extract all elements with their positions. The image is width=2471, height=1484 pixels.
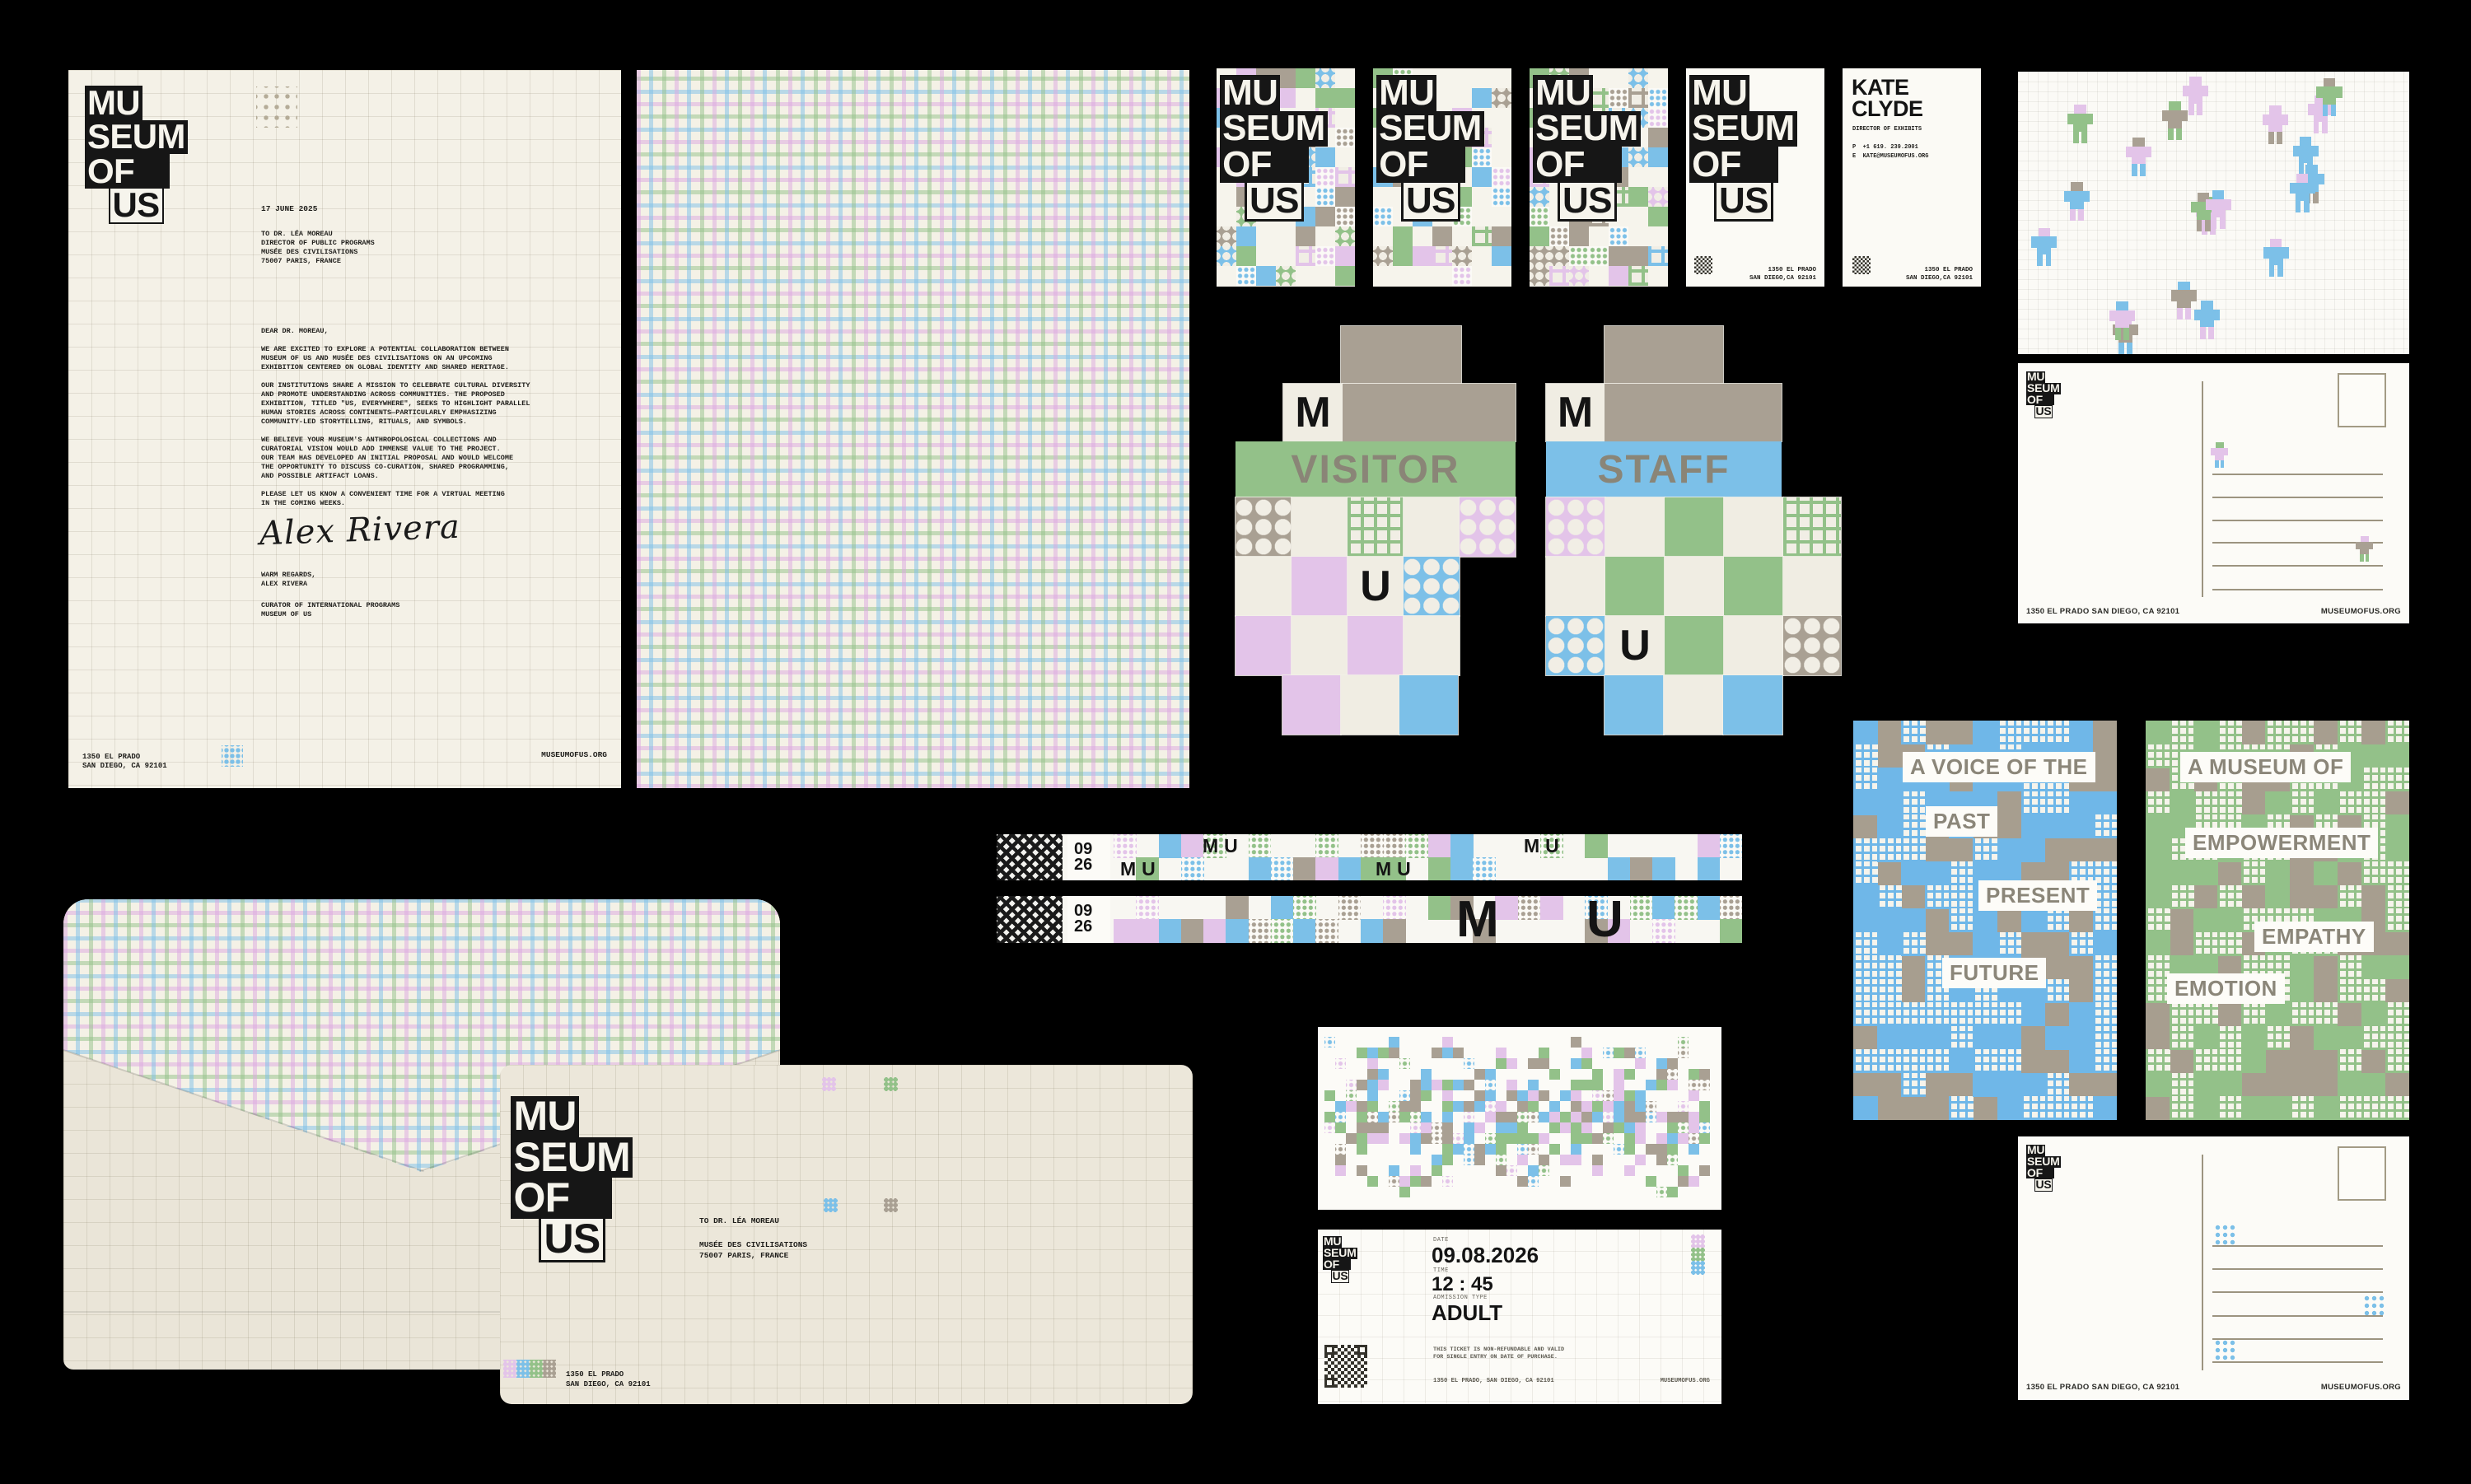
mosaic-cell [1474, 1144, 1485, 1155]
mosaic-cell [1357, 1101, 1367, 1112]
pixel-block [2269, 259, 2283, 265]
poster-cell [1949, 1002, 1974, 1026]
mosaic-cell [1614, 1101, 1624, 1112]
mosaic-cell [1581, 1058, 1592, 1069]
poster-cell [1877, 1002, 1902, 1026]
mosaic-cell [1464, 1058, 1474, 1069]
poster-cell [1853, 1049, 1878, 1073]
pixel-block [2126, 147, 2151, 157]
mosaic-cell [1689, 1144, 1699, 1155]
card-pattern-cell [1549, 246, 1569, 266]
museum-of-us-logo: MUSEUMOFUS [1533, 75, 1641, 222]
card-pattern-cell [1452, 246, 1472, 266]
poster-cell [1925, 1026, 1950, 1050]
mosaic-cell [1517, 1133, 1528, 1144]
mosaic-cell [1432, 1133, 1442, 1144]
dot-motif-icon [884, 1198, 898, 1212]
pixel-block [2322, 122, 2328, 133]
dot-motif-icon [824, 1198, 838, 1212]
logo-spacer-block [1587, 147, 1622, 183]
wristband-cell [1652, 896, 1675, 920]
mosaic-cell [1678, 1122, 1689, 1133]
pixel-block [2270, 239, 2282, 248]
poster-cell [2069, 1002, 2094, 1026]
poster-cell [2265, 885, 2290, 909]
poster-cell [1925, 1049, 1950, 1073]
pixel-block [2296, 174, 2308, 183]
poster-cell [1973, 908, 1997, 932]
mosaic-cell [1699, 1122, 1710, 1133]
mosaic-cell [1496, 1122, 1506, 1133]
poster-cell [1901, 1073, 1926, 1097]
poster-cell [2217, 1073, 2242, 1097]
poster-cell [2361, 1073, 2386, 1097]
poster-cell [2093, 932, 2117, 956]
pattern-sheet [637, 70, 1189, 788]
pixel-block [2171, 290, 2197, 301]
logo-box: MU [1689, 75, 1749, 111]
wristband-cell [1698, 834, 1721, 858]
mosaic-cell [1410, 1133, 1421, 1144]
dot-motif-icon [2363, 1295, 2385, 1317]
mosaic-cell [1335, 1155, 1346, 1165]
mosaic-cell [1442, 1155, 1453, 1165]
poster-cell [2290, 1096, 2315, 1120]
mosaic-cell [1485, 1144, 1496, 1155]
mosaic-cell [1689, 1080, 1699, 1090]
mosaic-cell [1635, 1101, 1646, 1112]
poster-cell [2146, 744, 2170, 768]
staff-badge: MSTAFFU [1546, 326, 1843, 738]
card-pattern-cell [1609, 266, 1628, 286]
poster-line: A VOICE OF THE [1903, 752, 2095, 782]
mosaic-cell [1485, 1112, 1496, 1122]
poster-cell [2385, 861, 2409, 885]
wristband-cell [1293, 919, 1316, 943]
pixel-block [2070, 209, 2076, 221]
museum-of-us-logo: MUSEUMOFUS [511, 1096, 633, 1262]
mosaic-cell [1517, 1176, 1528, 1187]
mosaic-cell [1389, 1176, 1399, 1187]
logo-spacer-block [1744, 147, 1778, 183]
mosaic-cell [1367, 1058, 1378, 1069]
mosaic-cell [1646, 1176, 1656, 1187]
mosaic-cell [1656, 1155, 1667, 1165]
badge-cell [1343, 384, 1516, 441]
mosaic-cell [1667, 1080, 1678, 1090]
poster-cell [1901, 908, 1926, 932]
pixel-block [2168, 128, 2174, 140]
mosaic-cell [1335, 1058, 1346, 1069]
mosaic-cell [1667, 1155, 1678, 1165]
poster-cell [2217, 1026, 2242, 1050]
poster-cell [2193, 1026, 2218, 1050]
card-pattern-cell [1335, 128, 1355, 147]
pixel-block [2268, 125, 2282, 132]
card-pattern-cell [1296, 226, 1315, 246]
poster-cell [1853, 885, 1878, 909]
logo-box-us: US [1714, 180, 1773, 222]
mosaic-cell [1539, 1058, 1549, 1069]
mosaic-cell [1367, 1069, 1378, 1080]
badge-cell [1348, 497, 1404, 557]
wristband-cell [1271, 919, 1294, 943]
badge-cell [1341, 326, 1461, 384]
mosaic-cell [1603, 1090, 1614, 1101]
poster-cell [2093, 1096, 2117, 1120]
badge-cell [1404, 497, 1460, 557]
mosaic-cell [1581, 1080, 1592, 1090]
mosaic-cell [1678, 1112, 1689, 1122]
mosaic-cell [1528, 1101, 1539, 1112]
mosaic-cell [1367, 1101, 1378, 1112]
mosaic-cell [1474, 1069, 1485, 1080]
writing-line [2212, 565, 2383, 567]
writing-line [2212, 520, 2383, 521]
wristband-cell [1630, 857, 1653, 880]
poster-cell [1901, 791, 1926, 815]
pixel-block [2263, 247, 2289, 258]
card-address: 1350 EL PRADOSAN DIEGO,CA 92101 [1749, 258, 1816, 282]
pixel-block [2277, 265, 2283, 277]
letter-signoff: WARM REGARDS, ALEX RIVERA [261, 571, 315, 589]
poster-cell [2170, 1073, 2194, 1097]
logo-box: SEUM [1689, 111, 1797, 147]
writing-line [2212, 589, 2383, 590]
mosaic-cell [1453, 1144, 1464, 1155]
logo-row: MU [1689, 75, 1749, 111]
logo-box: MU [511, 1096, 579, 1137]
poster-cell [1877, 791, 1902, 815]
dot-motif-icon [1691, 1234, 1705, 1248]
poster-cell [2265, 721, 2290, 744]
envelope-recipient-org: MUSÉE DES CIVILISATIONS 75007 PARIS, FRA… [699, 1239, 807, 1261]
mosaic-cell [1656, 1080, 1667, 1090]
letter-body: DEAR DR. MOREAU, WE ARE EXCITED TO EXPLO… [261, 327, 558, 508]
mosaic-cell [1324, 1122, 1335, 1133]
mosaic-cell [1528, 1058, 1539, 1069]
mosaic-cell [1464, 1133, 1474, 1144]
badge-letter: U [1605, 616, 1665, 675]
mosaic-cell [1453, 1133, 1464, 1144]
letter-salutation: DEAR DR. MOREAU, [261, 327, 558, 336]
logo-row: US [1220, 183, 1304, 222]
museum-of-us-logo: MUSEUMOFUS [85, 86, 188, 224]
mosaic-cell [1667, 1187, 1678, 1197]
writing-line [2212, 1245, 2383, 1247]
mosaic-cell [1442, 1048, 1453, 1058]
poster-cell [2193, 791, 2218, 815]
poster-cell [2193, 1096, 2218, 1120]
mosaic-cell [1678, 1037, 1689, 1048]
pixel-block [2132, 157, 2146, 164]
badge-cell [1605, 557, 1665, 616]
poster-cell [2193, 721, 2218, 744]
mosaic-cell [1357, 1122, 1367, 1133]
pixel-person-icon [2314, 78, 2345, 117]
poster-cell [2021, 814, 2046, 838]
mosaic-cell [1689, 1122, 1699, 1133]
mosaic-cell [1539, 1133, 1549, 1144]
badge-cell [1460, 497, 1516, 557]
wristband-mu-letters: MU [1120, 857, 1161, 880]
poster-cell [1877, 932, 1902, 956]
poster-cell [2290, 721, 2315, 744]
poster-line: EMPOWERMENT [2185, 828, 2378, 858]
poster-cell [1853, 768, 1878, 791]
poster-cell [1877, 908, 1902, 932]
poster-cell [2290, 955, 2315, 979]
logo-box-us: US [1331, 1270, 1350, 1283]
poster-cell [2093, 1002, 2117, 1026]
pixel-block [2123, 328, 2129, 339]
logo-box: OF [1689, 147, 1744, 183]
pixel-block [2268, 132, 2274, 143]
mosaic-cell [1560, 1090, 1571, 1101]
logo-box: SEUM [85, 120, 188, 155]
badge-cell [1605, 326, 1723, 384]
poster-cell [2170, 861, 2194, 885]
mosaic-cell [1689, 1090, 1699, 1101]
pixel-person-icon [2354, 536, 2375, 562]
letter-date: 17 JUNE 2025 [261, 204, 317, 213]
mosaic-cell [1689, 1133, 1699, 1144]
wristband-cell [1720, 834, 1742, 858]
mosaic-cell [1474, 1155, 1485, 1165]
qr-code [1852, 256, 1871, 274]
mosaic-cell [1421, 1090, 1432, 1101]
mosaic-cell [1560, 1122, 1571, 1133]
pixel-block [2216, 442, 2224, 448]
postcard-website: MUSEUMOFUS.ORG [2321, 1383, 2401, 1392]
badge-cell [1665, 557, 1724, 616]
poster-cell [2021, 1073, 2046, 1097]
mosaic-cell [1592, 1101, 1603, 1112]
mosaic-cell [1549, 1122, 1560, 1133]
pixel-block [2115, 328, 2121, 339]
poster-cell [2338, 1049, 2362, 1073]
wristband-cell [1315, 834, 1338, 858]
poster-cell [1997, 1049, 2022, 1073]
logo-box: OF [1220, 147, 1274, 183]
mosaic-cell [1410, 1176, 1421, 1187]
logo-spacer-block [572, 1178, 612, 1219]
footer-address: 1350 EL PRADOSAN DIEGO, CA 92101 [82, 744, 167, 771]
badge-cell [1724, 497, 1783, 557]
logo-box: OF [511, 1178, 572, 1219]
wristband-cell [1630, 896, 1653, 920]
mosaic-cell [1689, 1069, 1699, 1080]
pixel-person-icon [2209, 442, 2230, 468]
mosaic-cell [1485, 1101, 1496, 1112]
poster-cell [1877, 768, 1902, 791]
mosaic-cell [1678, 1176, 1689, 1187]
pixel-block [2212, 217, 2217, 229]
poster-cell [2045, 791, 2070, 815]
poster-cell [2361, 791, 2386, 815]
mosaic-cell [1614, 1048, 1624, 1058]
business-card-back: MUSEUMOFUS [1217, 68, 1355, 287]
logo-box-us: US [109, 187, 164, 225]
mosaic-cell [1592, 1080, 1603, 1090]
poster-cell [2146, 1049, 2170, 1073]
mosaic-cell [1592, 1112, 1603, 1122]
pixel-block [2183, 86, 2208, 96]
badge-cell [1724, 616, 1783, 675]
poster-cell [1925, 885, 1950, 909]
card-pattern-cell [1530, 246, 1549, 266]
poster-cell [1997, 838, 2022, 862]
poster-cell [2385, 744, 2409, 768]
badge-cell [1546, 497, 1605, 557]
poster-cell [2021, 1096, 2046, 1120]
mosaic-cell [1699, 1069, 1710, 1080]
mosaic-cell [1378, 1048, 1389, 1058]
poster-line: EMPATHY [2254, 922, 2374, 952]
mosaic-cell [1560, 1176, 1571, 1187]
mosaic-cell [1646, 1144, 1656, 1155]
mosaic-cell [1432, 1080, 1442, 1090]
poster-cell [2338, 1026, 2362, 1050]
mosaic-cell [1485, 1133, 1496, 1144]
mosaic-cell [1646, 1101, 1656, 1112]
pixel-people-card [2018, 72, 2409, 354]
pixel-block [2323, 98, 2337, 105]
logo-row: MU [1376, 75, 1436, 111]
poster-cell [1853, 721, 1878, 744]
pixel-block [2296, 194, 2310, 200]
card-pattern-cell [1648, 187, 1668, 207]
postcard-back: MUSEUMOFUS 1350 EL PRADO SAN DIEGO, CA 9… [2018, 363, 2409, 623]
mosaic-cell [1549, 1112, 1560, 1122]
mosaic-cell [1335, 1144, 1346, 1155]
badge-cell [1665, 616, 1724, 675]
mosaic-cell [1624, 1090, 1635, 1101]
letter-paragraph: OUR INSTITUTIONS SHARE A MISSION TO CELE… [261, 381, 558, 427]
poster-cell [2385, 1002, 2409, 1026]
pixel-block [2201, 301, 2212, 310]
poster-cell [2385, 814, 2409, 838]
mosaic-cell [1496, 1101, 1506, 1112]
mosaic-cell [1571, 1058, 1581, 1069]
logo-row: US [2026, 405, 2053, 418]
mosaic-cell [1410, 1090, 1421, 1101]
logo-row: US [1533, 183, 1617, 222]
wristband-cell [1405, 834, 1428, 858]
mosaic-cell [1410, 1080, 1421, 1090]
poster-cell [2338, 955, 2362, 979]
mosaic-cell [1357, 1048, 1367, 1058]
wristband-cell [1585, 834, 1608, 858]
poster-cell [2146, 932, 2170, 956]
pixel-block [2293, 146, 2319, 156]
poster-cell [2338, 1096, 2362, 1120]
mosaic-cell [1624, 1101, 1635, 1112]
pixel-block [2074, 105, 2086, 114]
mosaic-cell [1656, 1133, 1667, 1144]
mosaic-cell [1442, 1144, 1453, 1155]
poster-line: PAST [1926, 806, 1997, 837]
poster-line: EMOTION [2167, 973, 2285, 1004]
poster-cell [2146, 814, 2170, 838]
mosaic-cell [1442, 1037, 1453, 1048]
logo-row: OF [1689, 147, 1778, 183]
poster-cell [2361, 979, 2386, 1003]
poster-cell [1853, 838, 1878, 862]
badge-cell [1546, 616, 1605, 675]
pixel-block [2360, 554, 2363, 562]
mosaic-cell [1506, 1122, 1517, 1133]
pixel-block [2109, 310, 2135, 321]
poster-cell [1877, 1049, 1902, 1073]
pixel-block [2300, 137, 2311, 146]
mosaic-cell [1667, 1058, 1678, 1069]
card-pattern-cell [1335, 266, 1355, 286]
card-pattern-cell [1335, 207, 1355, 226]
mosaic-cell [1581, 1101, 1592, 1112]
poster-line: A MUSEUM OF [2180, 752, 2351, 782]
mosaic-cell [1581, 1048, 1592, 1058]
stamp-box [2338, 373, 2386, 427]
mosaic-cell [1389, 1112, 1399, 1122]
letter-paragraph: WE ARE EXCITED TO EXPLORE A POTENTIAL CO… [261, 345, 558, 372]
badge-banner: VISITOR [1235, 441, 1516, 497]
mosaic-cell [1421, 1122, 1432, 1133]
poster-cell [2021, 791, 2046, 815]
ticket-address: 1350 EL PRADO, SAN DIEGO, CA 92101 [1433, 1378, 1554, 1384]
mosaic-cell [1410, 1144, 1421, 1155]
poster-cell [1901, 1049, 1926, 1073]
brand-stationery-flatlay: MUSEUMOFUS 17 JUNE 2025 TO DR. LÉA MOREA… [0, 0, 2471, 1484]
wristband-cell [1338, 857, 1362, 880]
poster-cell [2069, 1096, 2094, 1120]
mosaic-cell [1517, 1112, 1528, 1122]
poster-past-present-future: A VOICE OF THE PAST PRESENT FUTURE [1853, 721, 2117, 1120]
mosaic-cell [1592, 1155, 1603, 1165]
badge-cell [1341, 675, 1399, 735]
pixel-block [2037, 254, 2043, 266]
badge-cell [1724, 557, 1783, 616]
badge-letter: M [1546, 384, 1605, 441]
mosaic-cell [1453, 1048, 1464, 1058]
wristband-cell [1114, 919, 1137, 943]
logo-box: SEUM [1220, 111, 1328, 147]
poster-cell [2093, 955, 2117, 979]
mosaic-cell [1667, 1144, 1678, 1155]
wristband-cell [1293, 896, 1316, 920]
mosaic-cell [1571, 1144, 1581, 1155]
pixel-block [2212, 190, 2224, 199]
mosaic-cell [1603, 1133, 1614, 1144]
wristband-cell [1271, 896, 1294, 920]
mosaic-cell [1389, 1165, 1399, 1176]
pixel-block [2176, 128, 2182, 140]
mosaic-cell [1442, 1122, 1453, 1133]
stamp-box [2338, 1146, 2386, 1201]
mosaic-cell [1324, 1090, 1335, 1101]
poster-cell [1901, 1026, 1926, 1050]
mosaic-cell [1549, 1101, 1560, 1112]
mosaic-cell [1496, 1112, 1506, 1122]
pixel-person-icon [2286, 174, 2318, 212]
dot-motif-icon [822, 1077, 836, 1091]
poster-cell [2217, 721, 2242, 744]
museum-of-us-logo: MUSEUMOFUS [2026, 371, 2061, 418]
poster-cell [2045, 1026, 2070, 1050]
mosaic-cell [1335, 1165, 1346, 1176]
mosaic-cell [1399, 1058, 1410, 1069]
logo-row: OF [1220, 147, 1309, 183]
